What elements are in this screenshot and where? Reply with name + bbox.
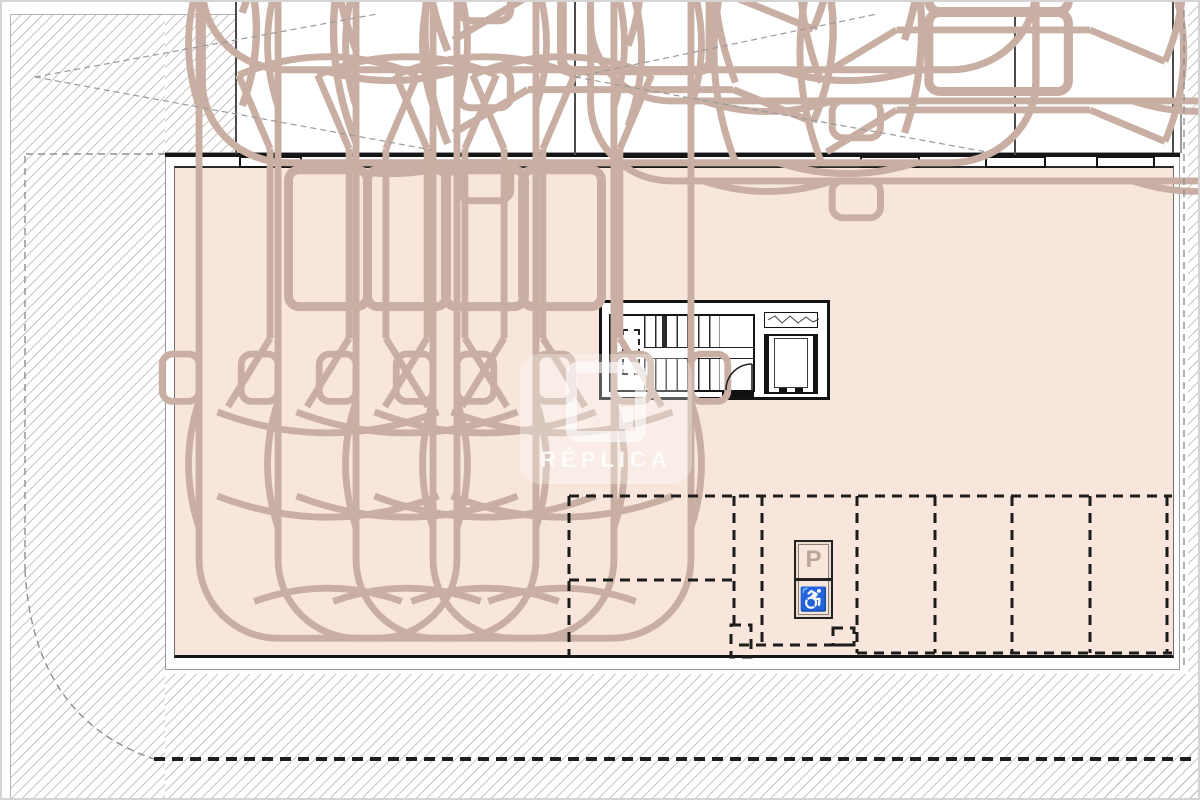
car-icon bbox=[591, 2, 1200, 138]
elevator-guide bbox=[779, 388, 787, 394]
floor-plan-canvas: P ♿ bbox=[0, 0, 1200, 800]
elevator-machine-box bbox=[764, 312, 818, 328]
context-wall-line bbox=[235, 2, 237, 154]
context-wall-line bbox=[432, 2, 434, 155]
car-icon bbox=[202, 2, 1036, 108]
stair-rail bbox=[662, 316, 666, 347]
wall-pier bbox=[1096, 156, 1155, 168]
elevator-cab bbox=[774, 338, 808, 388]
wall-pier bbox=[860, 156, 920, 168]
hatch-top-left-block bbox=[165, 14, 235, 152]
parking-letter: P bbox=[796, 542, 831, 578]
wall-pier bbox=[985, 156, 1046, 168]
context-wall-line bbox=[1014, 17, 1016, 155]
stair-flight-upper bbox=[644, 316, 720, 347]
context-wall-line bbox=[574, 2, 576, 155]
context-wall-line bbox=[1180, 2, 1182, 153]
car-icon bbox=[202, 2, 1036, 21]
watermark: RÉPLICA bbox=[520, 354, 692, 484]
elevator-guide bbox=[795, 388, 803, 394]
hatch-bottom-band bbox=[165, 674, 1200, 800]
replica-door-logo-icon bbox=[566, 362, 646, 442]
hatch-right-strip bbox=[1188, 6, 1200, 674]
door-sill bbox=[722, 390, 754, 397]
wall-pier bbox=[614, 156, 690, 168]
wheelchair-icon: ♿ bbox=[796, 581, 831, 617]
watermark-text: RÉPLICA bbox=[540, 447, 672, 473]
wall-pier bbox=[239, 156, 302, 168]
hatch-left-strip bbox=[10, 14, 165, 800]
accessible-parking-sign: P ♿ bbox=[794, 540, 833, 619]
context-wall-line bbox=[1172, 2, 1174, 153]
